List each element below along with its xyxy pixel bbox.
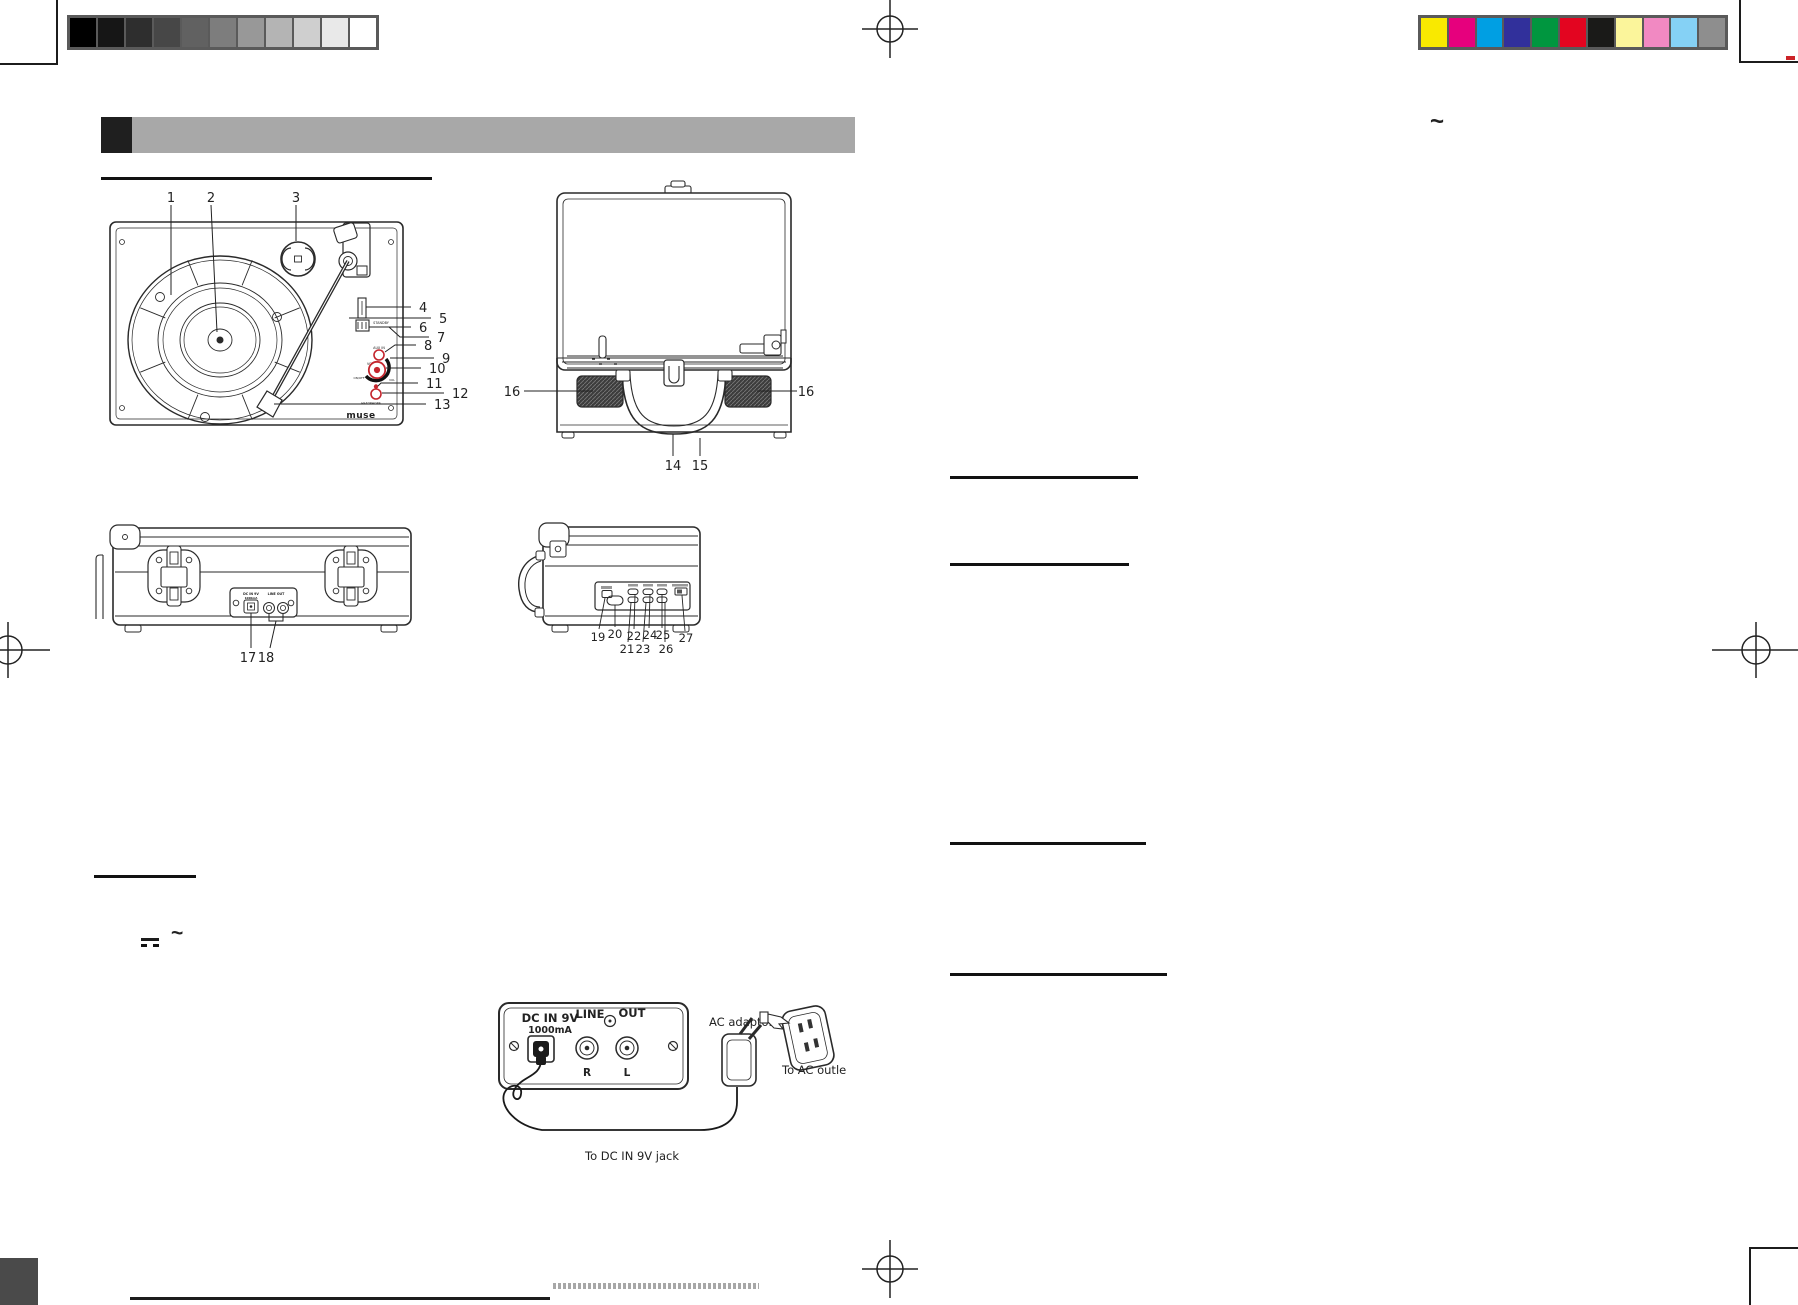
handle-side-profile (519, 551, 545, 617)
callout-20: 20 (608, 627, 623, 641)
diagram-front-view: 16 16 14 15 (500, 180, 820, 475)
arm-clip (357, 266, 367, 275)
calibration-swatch (350, 18, 376, 47)
calibration-swatch (266, 18, 294, 47)
header-bar (132, 117, 855, 153)
calibration-swatch (1616, 18, 1644, 47)
dc-symbol-solid-line (141, 938, 159, 941)
on-off-label: ON/OFF (353, 376, 364, 380)
power-connection-diagram: DC IN 9V 1000mA LINE OUT R L AC adaptor (430, 990, 890, 1180)
diagram-side-view: 19 20 21 22 23 24 25 26 27 (505, 515, 715, 675)
header-accent-block (101, 117, 132, 153)
latch-right (325, 546, 377, 606)
callout-15: 15 (692, 459, 709, 474)
out-label: OUT (619, 1006, 646, 1020)
port-label-smudge (643, 584, 653, 587)
crop-mark-top-right-horizontal (1739, 61, 1798, 63)
dc-symbol-dashed-line (141, 944, 159, 947)
lid-edge (96, 555, 103, 619)
jack-panel: DC IN 9V 1000mA LINE OUT R L (499, 1003, 688, 1089)
callout-5: 5 (439, 312, 447, 327)
spindle-post (599, 336, 606, 358)
manual-print-proof-page: { "calibration": { "grayscale": ["#00000… (0, 0, 1798, 1305)
calibration-swatch (1449, 18, 1477, 47)
foot (381, 625, 397, 632)
callout-27: 27 (679, 631, 694, 645)
right-heading-underline-2 (950, 563, 1129, 566)
ac-symbol-right-column: ~ (1430, 108, 1444, 136)
dc-in-label: DC IN 9V (522, 1011, 579, 1025)
callout-13: 13 (434, 398, 451, 413)
callout-3: 3 (292, 191, 300, 206)
callout-25: 25 (656, 628, 671, 642)
calibration-swatch (154, 18, 182, 47)
callout-1: 1 (167, 191, 175, 206)
open-lid (557, 181, 791, 370)
carry-handle (616, 360, 732, 434)
callout-23: 23 (636, 642, 651, 656)
latch-left (148, 546, 200, 606)
callout-2: 2 (207, 191, 215, 206)
footer-trim-line (130, 1297, 550, 1300)
right-heading-underline-4 (950, 973, 1167, 976)
callout-22: 22 (627, 629, 642, 643)
standby-label: STANDBY (373, 321, 390, 325)
side-callout-numbers: 19 20 21 22 23 24 25 26 27 (591, 627, 694, 656)
foot (552, 625, 568, 632)
callout-26: 26 (659, 642, 674, 656)
calibration-swatch (1644, 18, 1672, 47)
brand-logo: muse (346, 411, 375, 421)
callout-16-left: 16 (504, 385, 521, 400)
left-heading-underline (94, 875, 196, 878)
spindle (217, 337, 224, 344)
right-heading-underline-3 (950, 842, 1146, 845)
calibration-swatch (294, 18, 322, 47)
line-label: LINE (575, 1007, 604, 1021)
callout-21: 21 (620, 642, 635, 656)
calibration-swatch (1477, 18, 1505, 47)
calibration-swatch (1588, 18, 1616, 47)
grayscale-calibration-bar (67, 15, 379, 50)
crop-mark-bottom-right-vertical (1749, 1247, 1751, 1305)
foot (774, 432, 786, 438)
calibration-swatch (1504, 18, 1532, 47)
rca-r-label: R (583, 1067, 591, 1079)
diagram-top-view: STANDBY AUX IN VOL. ON/OFF VOL HEADPHONE… (95, 165, 475, 435)
calibration-swatch (210, 18, 238, 47)
callout-11: 11 (426, 377, 443, 392)
callout-10: 10 (429, 362, 446, 377)
calibration-swatch (1532, 18, 1560, 47)
rca-l-label: L (624, 1067, 631, 1079)
callout-14: 14 (665, 459, 682, 474)
calibration-swatch (1671, 18, 1699, 47)
crop-mark-top-right-vertical (1739, 0, 1741, 61)
callout-7: 7 (437, 331, 445, 346)
registration-target-top-center (862, 0, 918, 58)
calibration-swatch (322, 18, 350, 47)
registration-target-bottom-center (862, 1240, 918, 1298)
to-ac-outlet-label: To AC outle (781, 1063, 846, 1077)
power-led (374, 384, 378, 388)
callout-18: 18 (258, 651, 275, 666)
rear-callout-numbers: 17 18 (240, 651, 275, 666)
color-calibration-bar (1418, 15, 1728, 50)
corner-print-block (0, 1258, 38, 1305)
port-label-smudge (601, 586, 612, 589)
current-label-small: 1000mA (245, 596, 259, 600)
calibration-swatch (70, 18, 98, 47)
callout-16-right: 16 (798, 385, 815, 400)
corner-cap (110, 525, 140, 549)
callout-19: 19 (591, 630, 606, 644)
crop-mark-bottom-right-horizontal (1749, 1247, 1798, 1249)
callout-6: 6 (419, 321, 427, 336)
calibration-swatch (182, 18, 210, 47)
calibration-swatch (1699, 18, 1725, 47)
calibration-swatch (1560, 18, 1588, 47)
to-dc-jack-label: To DC IN 9V jack (584, 1149, 679, 1163)
callout-8: 8 (424, 339, 432, 354)
crop-mark-top-left-vertical (56, 0, 58, 64)
side-cabinet (539, 523, 700, 632)
ac-symbol-left: ~ (171, 922, 183, 946)
port-label-smudge (672, 584, 688, 587)
crop-mark-top-left-horizontal (0, 63, 58, 65)
foot (125, 625, 141, 632)
handle-center-hinge (664, 360, 684, 386)
port-label-smudge (628, 584, 638, 587)
calibration-swatch (126, 18, 154, 47)
registration-target-middle-left (0, 622, 50, 678)
right-heading-underline-1 (950, 476, 1138, 479)
red-registration-tick (1786, 56, 1795, 60)
port-label-smudge (657, 584, 667, 587)
rear-connector-panel: DC IN 9V 1000mA LINE OUT (230, 588, 297, 617)
registration-target-middle-right (1712, 622, 1798, 678)
calibration-swatch (98, 18, 126, 47)
side-port-panel (595, 582, 690, 610)
dc-plug-body (536, 1056, 546, 1065)
foot (562, 432, 574, 438)
line-out-label-small: LINE OUT (268, 592, 285, 596)
callout-17: 17 (240, 651, 257, 666)
footer-microtext (553, 1283, 759, 1289)
callout-4: 4 (419, 301, 427, 316)
calibration-swatch (1421, 18, 1449, 47)
callout-12: 12 (452, 387, 469, 402)
vol-max-label: VOL (389, 378, 395, 382)
calibration-swatch (238, 18, 266, 47)
current-label: 1000mA (528, 1025, 572, 1036)
diagram-rear-view: DC IN 9V 1000mA LINE OUT 17 18 (85, 515, 425, 675)
wall-outlet (780, 1004, 836, 1072)
